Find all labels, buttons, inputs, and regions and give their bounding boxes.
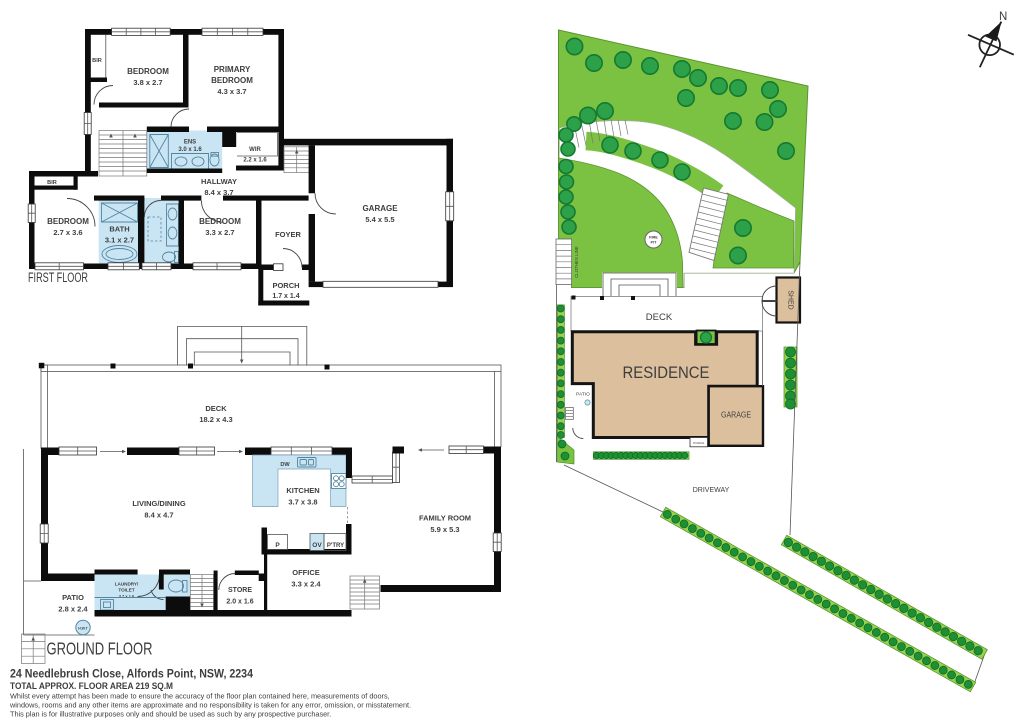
svg-text:5.9 x 5.3: 5.9 x 5.3 — [430, 525, 459, 534]
svg-text:GARAGE: GARAGE — [721, 411, 751, 420]
svg-text:LIVING/DINING: LIVING/DINING — [132, 499, 186, 508]
svg-text:TOILET: TOILET — [118, 588, 134, 593]
svg-text:P'TRY: P'TRY — [327, 543, 344, 549]
svg-text:STORE: STORE — [228, 587, 252, 594]
svg-text:3.1 x 2.7: 3.1 x 2.7 — [105, 236, 134, 245]
svg-text:windows, rooms and any other i: windows, rooms and any other items are a… — [9, 701, 411, 710]
svg-text:GROUND FLOOR: GROUND FLOOR — [47, 639, 153, 659]
svg-text:PORCH: PORCH — [272, 281, 299, 290]
svg-text:DRIVEWAY: DRIVEWAY — [693, 487, 730, 494]
svg-text:FOYER: FOYER — [275, 230, 301, 239]
svg-text:DW: DW — [280, 462, 290, 468]
svg-text:PATIO: PATIO — [576, 392, 590, 398]
svg-text:LAUNDRY/: LAUNDRY/ — [115, 582, 139, 587]
svg-text:H.W.T: H.W.T — [78, 627, 88, 631]
svg-text:5.4 x 5.5: 5.4 x 5.5 — [365, 215, 394, 224]
svg-text:FIRST FLOOR: FIRST FLOOR — [28, 270, 88, 285]
svg-text:3.0 x 1.6: 3.0 x 1.6 — [178, 147, 202, 153]
svg-text:BIR: BIR — [47, 180, 57, 186]
svg-text:BEDROOM: BEDROOM — [47, 217, 89, 226]
svg-text:FAMILY ROOM: FAMILY ROOM — [419, 514, 471, 523]
svg-text:3.3 x 2.7: 3.3 x 2.7 — [205, 228, 234, 237]
svg-text:OFFICE: OFFICE — [292, 568, 320, 577]
svg-text:3.8 x 2.7: 3.8 x 2.7 — [133, 78, 162, 87]
svg-text:DECK: DECK — [646, 312, 673, 323]
svg-text:BEDROOM: BEDROOM — [211, 76, 253, 85]
svg-text:PRIMARY: PRIMARY — [214, 65, 251, 74]
svg-text:FIRE: FIRE — [649, 236, 658, 240]
svg-text:2.7 x 3.6: 2.7 x 3.6 — [53, 228, 82, 237]
svg-text:OV: OV — [312, 542, 322, 549]
svg-text:18.2 x 4.3: 18.2 x 4.3 — [199, 415, 232, 424]
svg-text:P: P — [275, 542, 280, 549]
svg-text:PATIO: PATIO — [62, 593, 84, 602]
svg-text:ENS: ENS — [184, 140, 196, 146]
svg-text:8.4 x 4.7: 8.4 x 4.7 — [144, 511, 173, 520]
svg-text:2.0 x 1.6: 2.0 x 1.6 — [226, 599, 253, 606]
svg-text:TOTAL APPROX. FLOOR AREA 219 S: TOTAL APPROX. FLOOR AREA 219 SQ.M — [10, 681, 173, 691]
svg-text:PORCH: PORCH — [693, 441, 704, 445]
svg-text:SHED: SHED — [787, 290, 794, 309]
svg-text:PIT: PIT — [651, 241, 658, 245]
svg-text:24 Needlebrush Close, Alfords: 24 Needlebrush Close, Alfords Point, NSW… — [10, 667, 253, 681]
svg-text:CLOTHES LINE: CLOTHES LINE — [574, 246, 579, 278]
svg-text:KITCHEN: KITCHEN — [286, 486, 319, 495]
svg-text:GARAGE: GARAGE — [362, 204, 398, 213]
svg-text:BEDROOM: BEDROOM — [199, 217, 241, 226]
svg-text:BATH: BATH — [109, 225, 129, 234]
svg-text:2.2 x 1.6: 2.2 x 1.6 — [243, 158, 267, 164]
svg-text:2.8 x 2.4: 2.8 x 2.4 — [58, 605, 88, 614]
svg-text:This plan is for illustrative: This plan is for illustrative purposes o… — [10, 710, 331, 719]
svg-text:BEDROOM: BEDROOM — [127, 67, 169, 76]
svg-text:Whilst every attempt has been: Whilst every attempt has been made to en… — [10, 692, 390, 701]
svg-text:3.3 x 2.4: 3.3 x 2.4 — [291, 580, 321, 589]
svg-text:3.7 x 3.8: 3.7 x 3.8 — [288, 498, 317, 507]
svg-text:RESIDENCE: RESIDENCE — [623, 364, 710, 382]
svg-text:4.3 x 3.7: 4.3 x 3.7 — [217, 87, 246, 96]
svg-text:WIR: WIR — [249, 147, 261, 153]
svg-text:HALLWAY: HALLWAY — [201, 177, 237, 186]
svg-text:BIR: BIR — [92, 58, 102, 64]
svg-text:N: N — [999, 11, 1007, 23]
svg-text:1.7 x 1.4: 1.7 x 1.4 — [272, 293, 299, 300]
svg-text:DECK: DECK — [205, 404, 227, 413]
